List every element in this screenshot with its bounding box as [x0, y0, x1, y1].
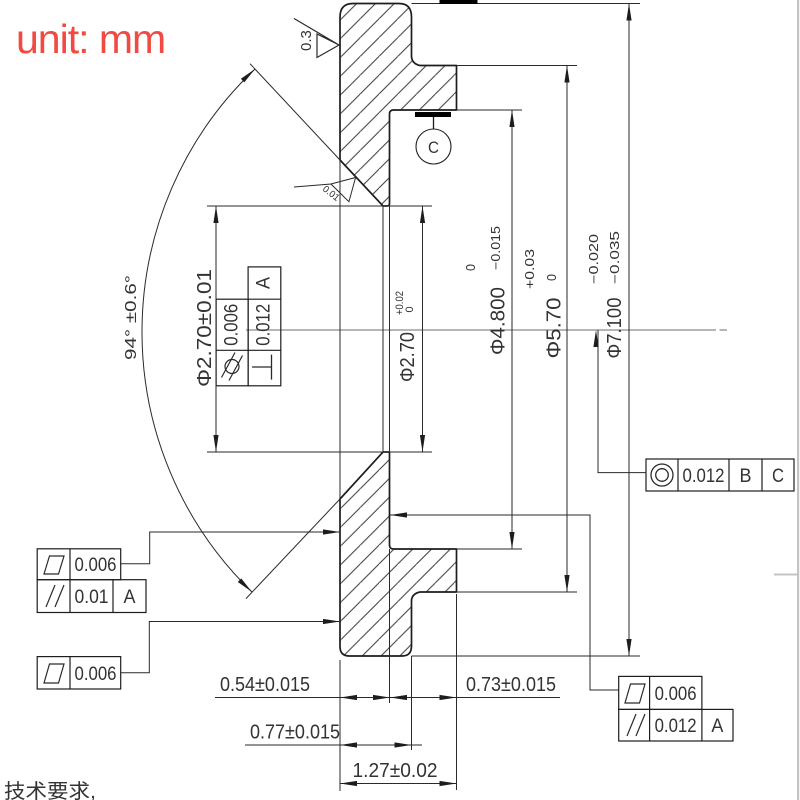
svg-text:−0.020: −0.020	[587, 234, 601, 284]
svg-text:Φ5.70: Φ5.70	[544, 298, 566, 359]
svg-text:−0.015: −0.015	[489, 226, 503, 270]
svg-text:−0.035: −0.035	[608, 231, 622, 284]
svg-text:0.012: 0.012	[655, 716, 697, 737]
svg-text:B: B	[740, 466, 752, 487]
svg-text:0.006: 0.006	[655, 684, 697, 705]
svg-text:0.54±0.015: 0.54±0.015	[220, 674, 310, 696]
svg-text:0.73±0.015: 0.73±0.015	[466, 674, 556, 696]
svg-text:0.77±0.015: 0.77±0.015	[250, 722, 340, 744]
svg-text:0.006: 0.006	[75, 555, 117, 576]
svg-text:C: C	[772, 466, 784, 487]
svg-text:Φ4.800: Φ4.800	[488, 287, 510, 355]
svg-text:Φ7.100: Φ7.100	[604, 298, 626, 359]
svg-text:A: A	[254, 277, 275, 289]
svg-text:+0.03: +0.03	[523, 249, 537, 289]
svg-text:1.27±0.02: 1.27±0.02	[353, 760, 438, 782]
svg-text:A: A	[124, 587, 136, 608]
svg-text:0.006: 0.006	[222, 304, 243, 346]
svg-text:0: 0	[545, 274, 559, 281]
svg-text:0: 0	[464, 264, 478, 271]
svg-text:Φ2.70±0.01: Φ2.70±0.01	[194, 269, 216, 387]
svg-text:0.3: 0.3	[298, 30, 315, 51]
svg-text:0.012: 0.012	[683, 466, 725, 487]
svg-text:unit: mm: unit: mm	[16, 16, 165, 62]
svg-text:0.006: 0.006	[75, 664, 117, 685]
svg-text:94° ±0.6°: 94° ±0.6°	[123, 275, 140, 360]
svg-text:A: A	[711, 716, 723, 737]
svg-text:技术要求,: 技术要求,	[4, 780, 96, 800]
svg-text:Φ2.70: Φ2.70	[397, 332, 419, 382]
svg-text:0: 0	[404, 306, 416, 312]
svg-text:0.012: 0.012	[254, 304, 275, 346]
svg-text:0.01: 0.01	[75, 587, 109, 608]
svg-text:C: C	[428, 138, 439, 157]
